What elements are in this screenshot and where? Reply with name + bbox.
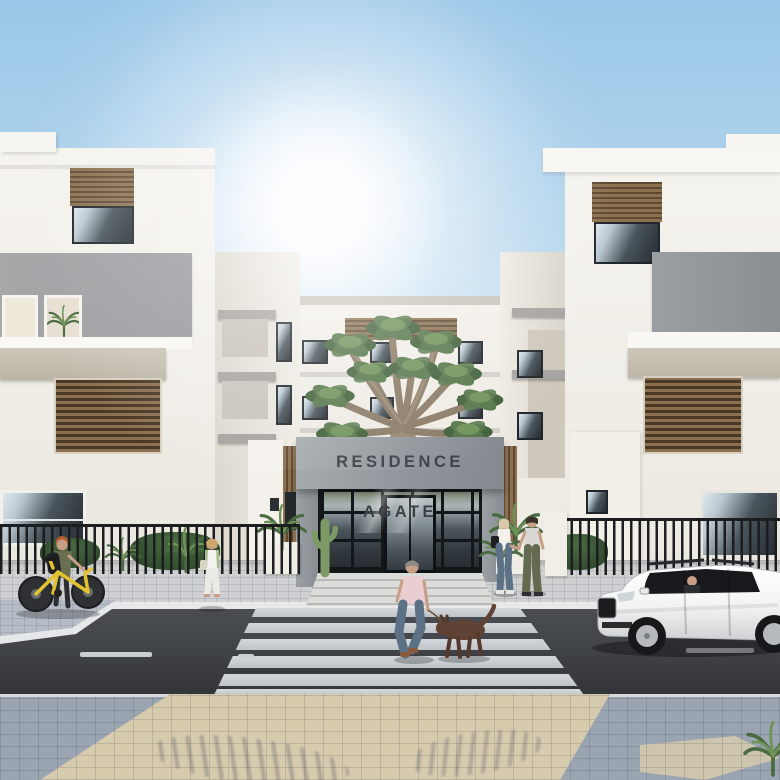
wood-panel [592,182,662,222]
balcony-recess [222,381,268,419]
top-window [594,222,660,264]
architectural-render: RESIDENCE AGATE [0,0,780,780]
white-car [588,544,780,664]
right-building [565,152,780,568]
foreground-plant [742,716,780,778]
balcony-slab [218,372,276,381]
box-window [586,490,608,514]
white-band [628,332,780,348]
beige-canopy [0,348,166,380]
sign-title: RESIDENCE AGATE [296,437,504,489]
top-window [72,206,134,244]
beige-canopy [628,348,780,378]
balcony-palm [46,298,82,342]
woman-pedestrian [192,536,232,614]
lane-dash [238,654,254,658]
balcony-slab [218,310,276,319]
left-building [0,148,215,568]
balcony-recess [222,319,268,357]
balcony-opening [2,295,38,343]
louver-frame [643,376,743,454]
wood-panel [70,168,134,206]
man-with-dog [382,556,500,668]
roof-parapet [0,132,56,152]
louver-frame [54,378,162,454]
canopy-sign: RESIDENCE AGATE [296,437,504,489]
balcony-opening [44,295,82,343]
window-sill-line [3,519,83,521]
crosswalk-stripe [200,674,600,686]
couple-walking [488,514,552,600]
wood-louver-window [645,378,741,452]
roof-parapet [726,134,780,152]
lane-dash [80,652,152,657]
wood-louver-window [56,380,160,452]
cyclist [6,532,106,620]
cactus [308,502,342,580]
